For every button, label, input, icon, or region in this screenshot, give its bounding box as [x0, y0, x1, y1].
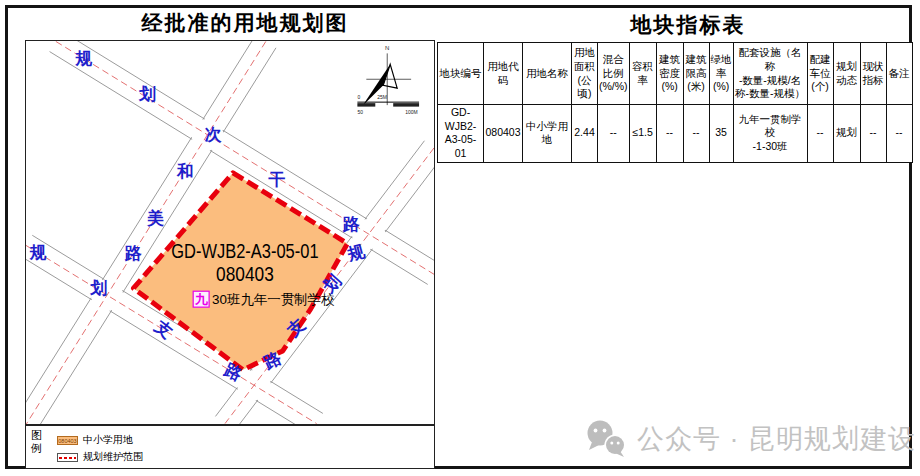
- cell-density: --: [656, 105, 683, 163]
- cell-remarks: --: [886, 105, 912, 163]
- table-title: 地块指标表: [468, 11, 908, 39]
- col-header: 现状 指标: [860, 43, 886, 105]
- col-header: 配建 车位 (个): [807, 43, 833, 105]
- col-header: 用地名称: [523, 43, 572, 105]
- legend-title-char: 例: [31, 442, 42, 455]
- col-header: 建筑 限高 (米): [683, 43, 709, 105]
- svg-text:和: 和: [176, 162, 194, 181]
- land-use-map: GD-WJB2-A3-05-01 080403 九 30班九年一贯制学校 规 划…: [25, 40, 435, 425]
- parcel-id-label: GD-WJB2-A3-05-01: [171, 239, 318, 262]
- svg-text:规: 规: [74, 49, 92, 68]
- col-header: 备注: [886, 43, 912, 105]
- col-header: 混合 比例 (%/%): [598, 43, 630, 105]
- col-header: 绿地 率(%): [709, 43, 733, 105]
- col-header: 地块编号: [438, 43, 484, 105]
- school-badge-icon: 九: [194, 292, 209, 307]
- legend-item-boundary: 规划维护范围: [57, 450, 143, 464]
- svg-text:25M: 25M: [377, 95, 387, 100]
- cell-height-limit: --: [683, 105, 709, 163]
- cell-mix-ratio: --: [598, 105, 630, 163]
- svg-text:50: 50: [357, 110, 363, 115]
- watermark: 公众号 · 昆明规划建设: [584, 419, 916, 459]
- cell-far: ≤1.5: [629, 105, 656, 163]
- cell-land-name: 中小学用地: [523, 105, 572, 163]
- svg-text:干: 干: [268, 170, 285, 189]
- map-title: 经批准的用地规划图: [40, 9, 450, 37]
- north-label: N: [385, 45, 389, 51]
- svg-text:美: 美: [146, 208, 164, 228]
- watermark-text: 公众号 · 昆明规划建设: [637, 421, 916, 457]
- table-row: GD-WJB2- A3-05-01 080403 中小学用地 2.44 -- ≤…: [438, 105, 913, 163]
- svg-text:0: 0: [357, 95, 360, 100]
- legend-item-school-land: 080403 中小学用地: [57, 433, 133, 447]
- svg-text:划: 划: [89, 279, 107, 298]
- cell-current-index: --: [860, 105, 886, 163]
- parcel-code-label: 080403: [216, 262, 274, 285]
- col-header: 配套设施（名称 -数量-规模/名 称-数量-规模）: [733, 43, 807, 105]
- cell-facilities: 九年一贯制学校 -1-30班: [733, 105, 807, 163]
- table-header-row: 地块编号 用地代 码 用地名称 用地 面积 (公顷) 混合 比例 (%/%) 容…: [438, 43, 913, 105]
- col-header: 容积 率: [629, 43, 656, 105]
- svg-text:路: 路: [124, 244, 142, 263]
- planning-notice-page: 经批准的用地规划图 地块指标表: [0, 0, 920, 476]
- school-land-swatch: 080403: [57, 436, 78, 445]
- map-legend: 图 例 080403 中小学用地 规划维护范围: [25, 425, 435, 469]
- legend-label: 规划维护范围: [83, 450, 143, 464]
- facility-label: 30班九年一贯制学校: [212, 292, 335, 307]
- wechat-icon: [584, 419, 628, 459]
- cell-land-area: 2.44: [572, 105, 598, 163]
- col-header: 建筑 密度 (%): [656, 43, 683, 105]
- svg-text:100M: 100M: [405, 110, 417, 115]
- legend-label: 中小学用地: [83, 433, 133, 447]
- boundary-swatch: [57, 453, 78, 462]
- scale-bar: 0 25M 50 100M: [357, 95, 419, 115]
- cell-parking: --: [807, 105, 833, 163]
- legend-title: 图 例: [31, 429, 42, 455]
- plot-index-table: 地块编号 用地代 码 用地名称 用地 面积 (公顷) 混合 比例 (%/%) 容…: [437, 42, 913, 163]
- cell-plan-status: 规划: [833, 105, 860, 163]
- legend-title-char: 图: [31, 429, 42, 442]
- svg-text:次: 次: [205, 125, 223, 144]
- col-header: 规划 动态: [833, 43, 860, 105]
- col-header: 用地代 码: [484, 43, 523, 105]
- svg-text:规: 规: [28, 243, 46, 262]
- svg-text:划: 划: [138, 85, 156, 104]
- svg-text:路: 路: [342, 215, 360, 234]
- col-header: 用地 面积 (公顷): [572, 43, 598, 105]
- map-canvas: GD-WJB2-A3-05-01 080403 九 30班九年一贯制学校 规 划…: [26, 41, 434, 424]
- cell-green-rate: 35: [709, 105, 733, 163]
- cell-plot-number: GD-WJB2- A3-05-01: [438, 105, 484, 163]
- cell-land-code: 080403: [484, 105, 523, 163]
